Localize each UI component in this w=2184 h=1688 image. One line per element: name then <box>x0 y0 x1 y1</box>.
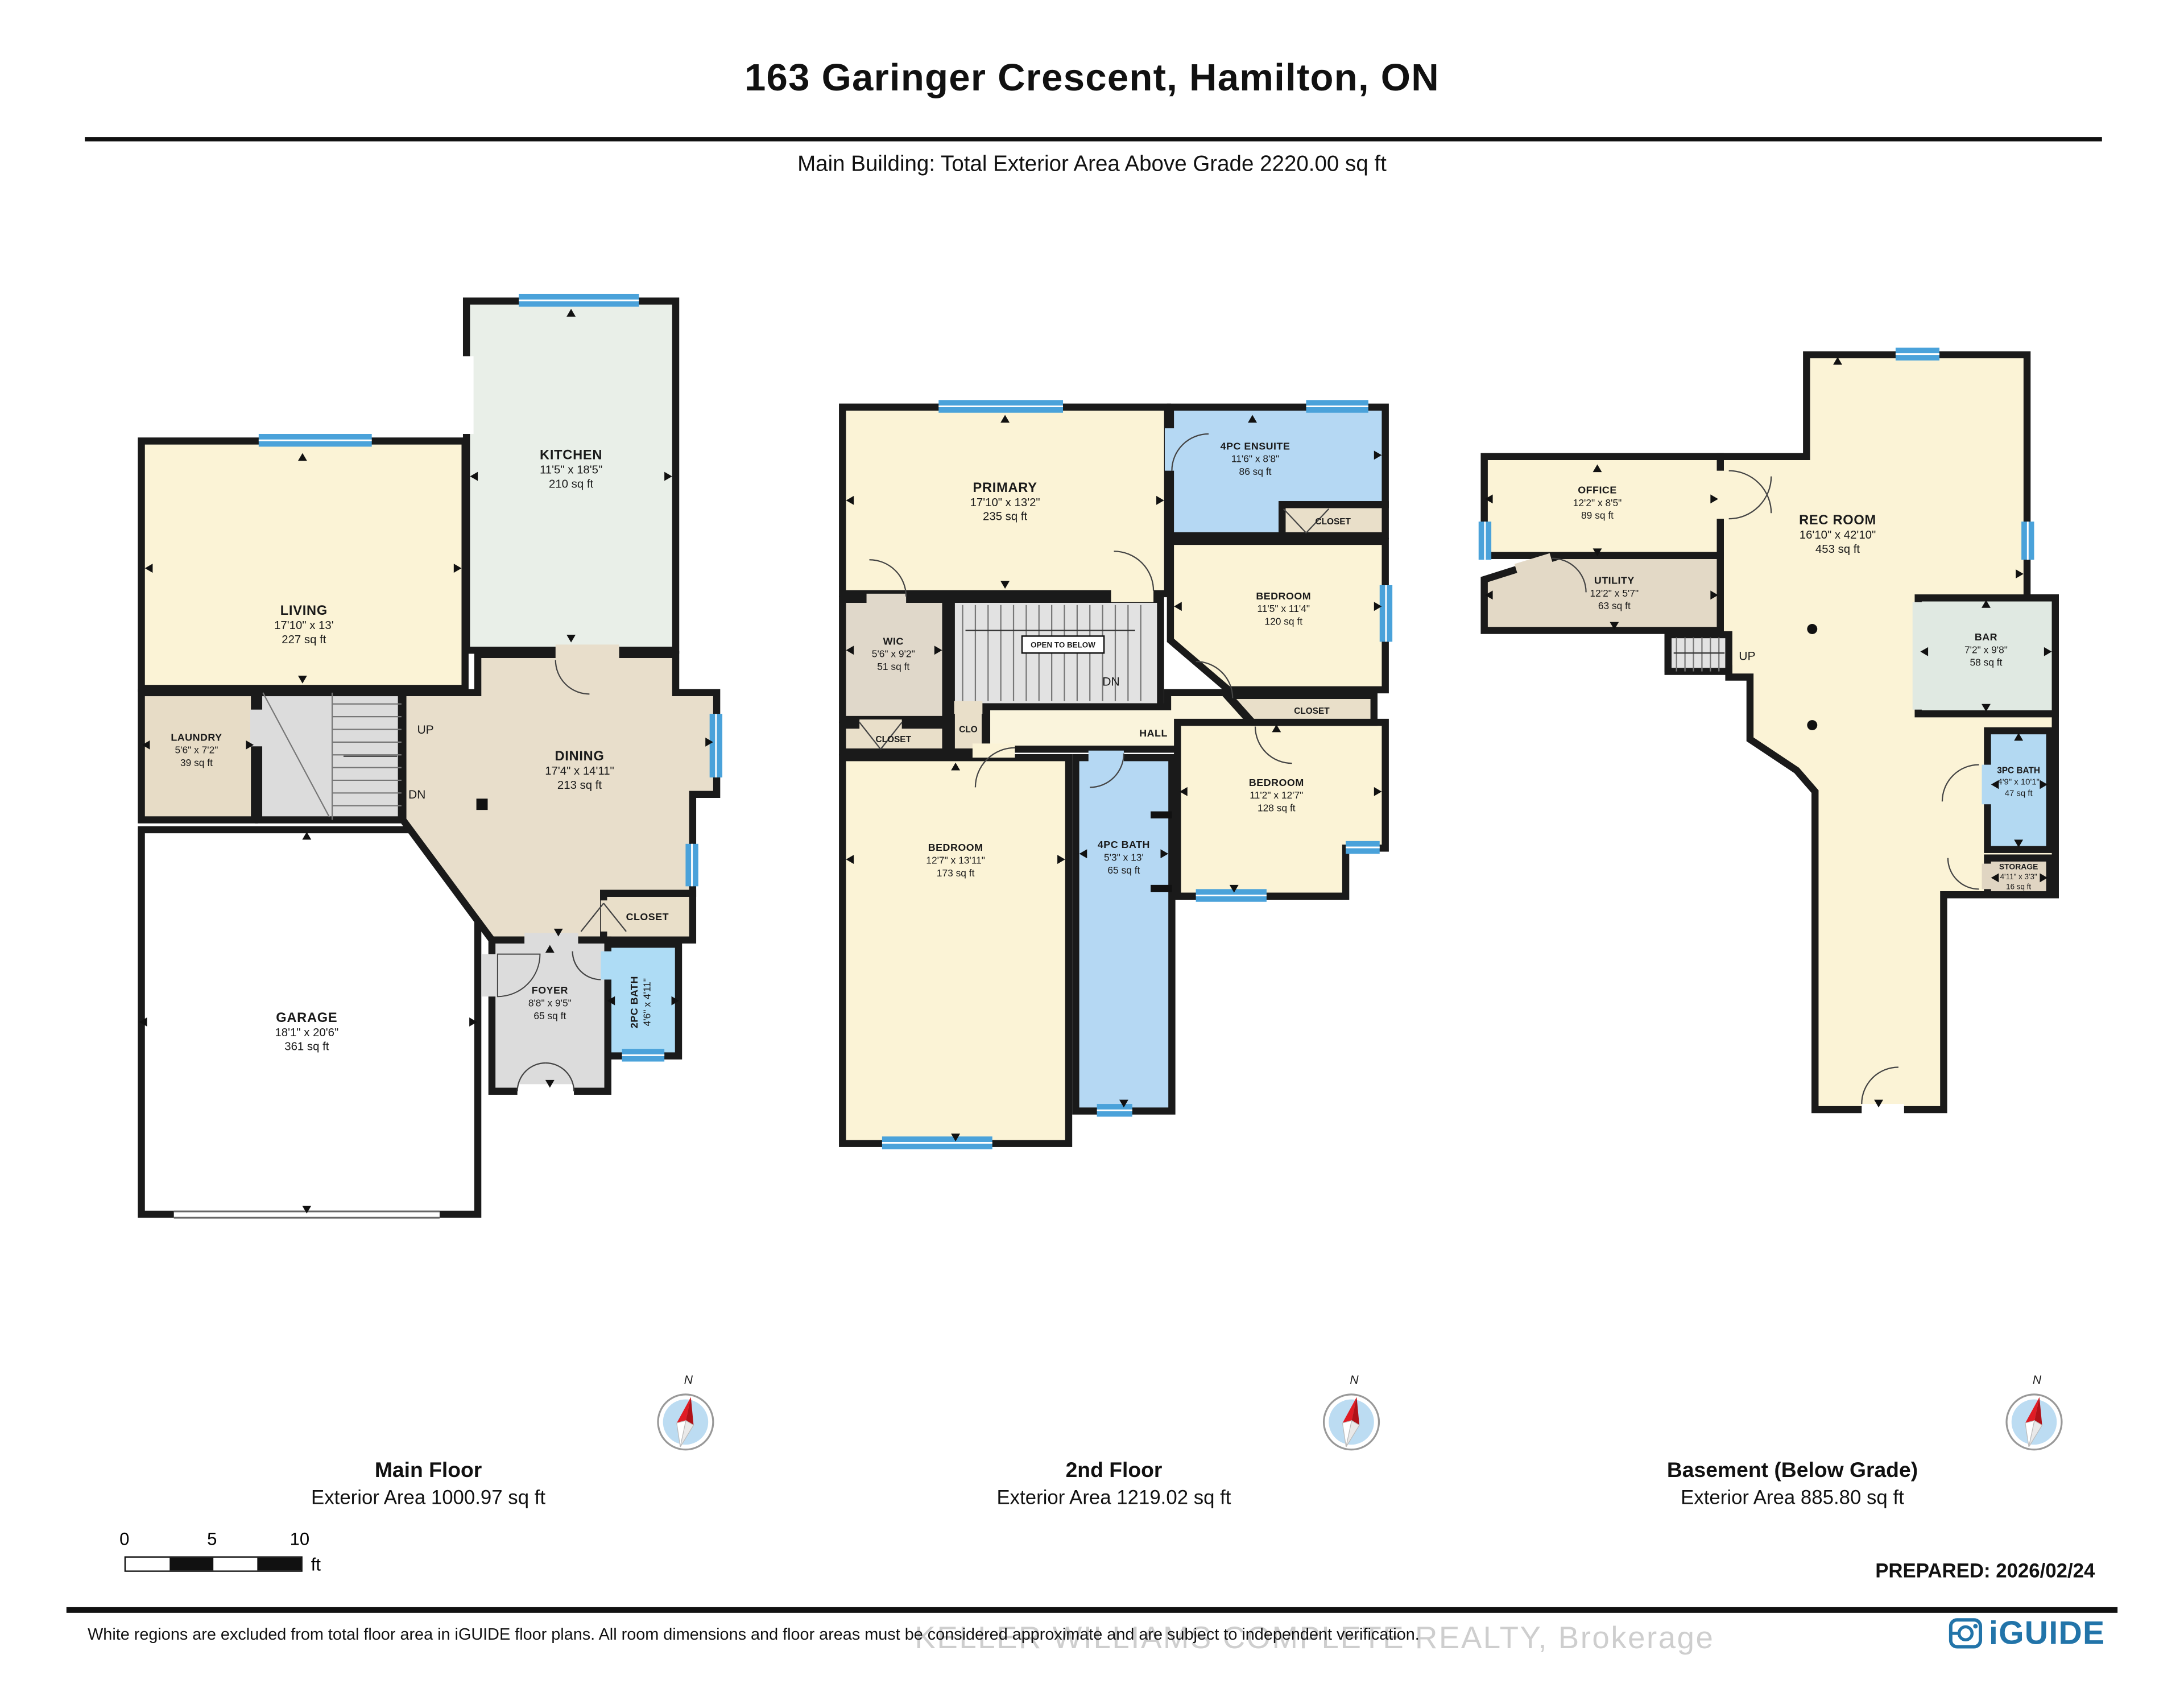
living-dims: 17'10" x 13' <box>274 619 334 632</box>
bedroom4-dims: 11'2" x 12'7" <box>1250 789 1303 801</box>
bath3pc-area: 47 sq ft <box>2005 789 2033 798</box>
utility-dims: 12'2" x 5'7" <box>1590 588 1639 599</box>
footer-divider <box>67 1607 2117 1613</box>
scale-label-0: 0 <box>119 1529 129 1549</box>
bedroom2-dims: 11'5" x 11'4" <box>1257 603 1310 614</box>
room-living <box>142 441 465 688</box>
living-area: 227 sq ft <box>282 634 326 646</box>
scale-label-5: 5 <box>207 1529 217 1549</box>
scale-bar <box>125 1556 303 1571</box>
office-label: OFFICE <box>1578 484 1617 495</box>
pillar-basement-2 <box>1807 720 1817 730</box>
garage-area: 361 sq ft <box>284 1041 329 1053</box>
room-bedroom3 <box>842 758 1069 1144</box>
bedroom3-label: BEDROOM <box>928 842 983 853</box>
main-floor-caption: Main Floor Exterior Area 1000.97 sq ft <box>202 1459 654 1508</box>
up-label-basement: UP <box>1739 650 1755 663</box>
kitchen-dims: 11'5" x 18'5" <box>540 464 602 477</box>
storage-dims: 4'11" x 3'3" <box>2000 872 2037 881</box>
bedroom2-label: BEDROOM <box>1256 590 1311 602</box>
scale-unit: ft <box>311 1555 321 1575</box>
wic-dims: 5'6" x 9'2" <box>872 648 915 660</box>
prepared-date: PREPARED: 2026/02/24 <box>1671 1559 2095 1582</box>
main-floor-plan: KITCHEN 11'5" x 18'5" 210 sq ft LIVING 1… <box>134 292 725 1222</box>
garage-dims: 18'1" x 20'6" <box>275 1027 338 1039</box>
compass-basement: N <box>2001 1371 2066 1459</box>
bedroom2-area: 120 sq ft <box>1264 616 1302 627</box>
utility-label: UTILITY <box>1594 574 1635 586</box>
room-laundry <box>142 693 255 820</box>
office-area: 89 sq ft <box>1581 510 1614 521</box>
pillar-basement-1 <box>1807 624 1817 634</box>
bath3pc-label: 3PC BATH <box>1997 766 2040 776</box>
bath2f-area: 65 sq ft <box>1107 864 1140 876</box>
title-divider <box>85 137 2102 141</box>
basement-caption: Basement (Below Grade) Exterior Area 885… <box>1566 1459 2018 1508</box>
compass-main: N <box>653 1371 718 1459</box>
closet-label: CLOSET <box>626 911 669 922</box>
storage-area: 16 sq ft <box>2006 882 2031 891</box>
bar-dims: 7'2" x 9'8" <box>1964 644 2008 655</box>
bar-open-edge <box>1913 602 1925 710</box>
primary-dims: 17'10" x 13'2" <box>970 497 1040 509</box>
bath-partition-2 <box>1151 885 1172 892</box>
compass-n-main: N <box>684 1373 693 1387</box>
scale-label-10: 10 <box>290 1529 310 1549</box>
bath2f-dims: 5'3" x 13' <box>1104 852 1144 863</box>
basement-plan: OFFICE 12'2" x 8'5" 89 sq ft UTILITY 12'… <box>1473 346 2070 1124</box>
rec-area: 453 sq ft <box>1815 543 1860 556</box>
second-floor-area: Exterior Area 1219.02 sq ft <box>888 1486 1340 1508</box>
disclaimer-text: White regions are excluded from total fl… <box>88 1625 1699 1644</box>
hall-label: HALL <box>1139 727 1168 739</box>
up-label-main: UP <box>417 723 433 737</box>
second-floor-name: 2nd Floor <box>888 1459 1340 1483</box>
rec-dims: 16'10" x 42'10" <box>1800 529 1876 541</box>
clo-label: CLO <box>959 725 978 734</box>
closet-right-label: CLOSET <box>1294 706 1330 716</box>
bedroom4-label: BEDROOM <box>1249 777 1304 788</box>
primary-area: 235 sq ft <box>983 511 1027 523</box>
garage-label: GARAGE <box>276 1011 337 1025</box>
dn-label-main: DN <box>408 788 426 801</box>
kitchen-area: 210 sq ft <box>549 478 593 490</box>
laundry-label: LAUNDRY <box>171 731 222 743</box>
ensuite-dims: 11'6" x 8'8" <box>1231 453 1279 465</box>
floorplan-page: 163 Garinger Crescent, Hamilton, ON Main… <box>0 0 2184 1688</box>
kitchen-label: KITCHEN <box>540 448 602 463</box>
closet-left-label: CLOSET <box>876 735 912 744</box>
compass-n-2f: N <box>1350 1373 1359 1387</box>
bar-label: BAR <box>1975 631 1997 643</box>
ensuite-label: 4PC ENSUITE <box>1221 440 1290 452</box>
room-bath-2f <box>1076 758 1172 1111</box>
bath2pc-dims: 4'6" x 4'11" <box>641 978 652 1026</box>
room-bar <box>1918 598 2055 714</box>
main-floor-area: Exterior Area 1000.97 sq ft <box>202 1486 654 1508</box>
iguide-logo: iGUIDE <box>1948 1614 2105 1652</box>
basement-area: Exterior Area 885.80 sq ft <box>1566 1486 2018 1508</box>
main-floor-name: Main Floor <box>202 1459 654 1483</box>
bedroom4-area: 128 sq ft <box>1258 802 1296 814</box>
compass-2f: N <box>1319 1371 1384 1459</box>
iguide-camera-icon <box>1948 1615 1985 1652</box>
bar-area: 58 sq ft <box>1970 657 2002 668</box>
bath-partition-1 <box>1151 812 1172 818</box>
utility-area: 63 sq ft <box>1598 600 1631 611</box>
bedroom3-area: 173 sq ft <box>937 867 975 879</box>
bath2pc-label: 2PC BATH <box>628 976 640 1028</box>
foyer-dims: 8'8" x 9'5" <box>528 998 572 1009</box>
dn-label-2f: DN <box>1102 675 1120 688</box>
storage-label: STORAGE <box>1999 862 2038 871</box>
second-floor-caption: 2nd Floor Exterior Area 1219.02 sq ft <box>888 1459 1340 1508</box>
primary-label: PRIMARY <box>973 481 1037 495</box>
rec-label: REC ROOM <box>1799 513 1876 528</box>
foyer-area: 65 sq ft <box>533 1010 566 1021</box>
basement-name: Basement (Below Grade) <box>1566 1459 2018 1483</box>
ensuite-closet-label: CLOSET <box>1316 517 1351 527</box>
laundry-area: 39 sq ft <box>180 757 213 768</box>
bath2f-label: 4PC BATH <box>1098 839 1150 850</box>
open-to-below-label: OPEN TO BELOW <box>1031 640 1095 649</box>
ensuite-area: 86 sq ft <box>1239 466 1272 477</box>
dining-dims: 17'4" x 14'11" <box>545 765 614 777</box>
living-label: LIVING <box>280 603 328 618</box>
page-subtitle: Main Building: Total Exterior Area Above… <box>0 152 2184 178</box>
iguide-wordmark: iGUIDE <box>1989 1614 2105 1652</box>
office-dims: 12'2" x 8'5" <box>1573 497 1622 508</box>
dining-label: DINING <box>555 749 604 764</box>
second-floor-plan: PRIMARY 17'10" x 13'2" 235 sq ft 4PC ENS… <box>831 393 1395 1155</box>
bath3pc-dims: 4'9" x 10'1" <box>1997 777 2039 787</box>
foyer-label: FOYER <box>532 984 568 996</box>
bedroom3-dims: 12'7" x 13'11" <box>926 855 985 866</box>
laundry-dims: 5'6" x 7'2" <box>175 744 218 756</box>
page-title: 163 Garinger Crescent, Hamilton, ON <box>0 56 2184 100</box>
wic-label: WIC <box>883 635 904 647</box>
pillar-main <box>477 799 488 810</box>
compass-n-basement: N <box>2033 1373 2042 1387</box>
dining-area: 213 sq ft <box>557 779 602 792</box>
wic-area: 51 sq ft <box>877 661 909 672</box>
